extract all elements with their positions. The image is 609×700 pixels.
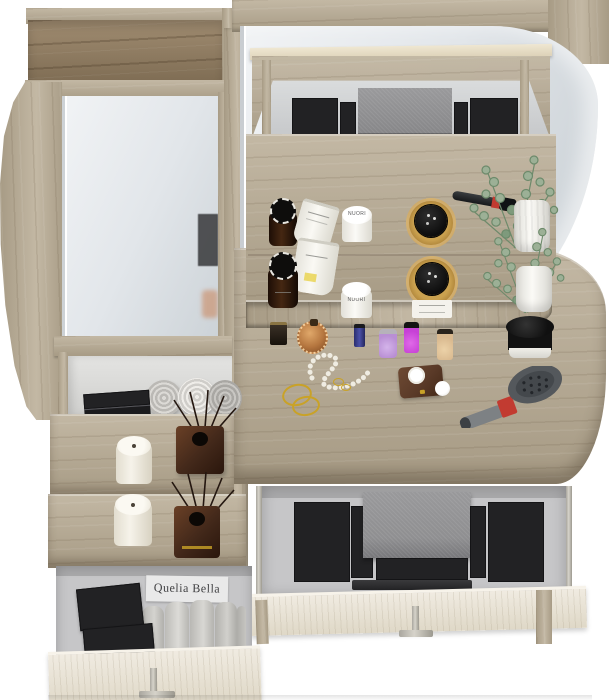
top-shelf-back-panel	[28, 20, 224, 84]
candle-wick	[132, 444, 136, 448]
lid-dots	[427, 214, 430, 217]
amber-dropper-bottle	[267, 252, 299, 308]
jar-lid-label: NUORI	[342, 206, 372, 224]
ornate-bottle-cap	[310, 319, 318, 326]
nail-polish-magenta	[404, 322, 419, 353]
diffuser-gold-label	[182, 546, 212, 549]
label-lines	[419, 305, 445, 313]
gold-earring	[341, 384, 351, 391]
black-powder-box	[506, 316, 554, 358]
jar-top	[342, 282, 371, 298]
mini-perfume-bottle	[270, 322, 287, 345]
powder-box-lid	[506, 316, 554, 338]
left-mirror-curved-frame	[0, 82, 66, 420]
table-leg	[536, 590, 552, 644]
right-drawer-handle-stem	[412, 606, 419, 632]
pillar-candle	[116, 436, 152, 484]
mirror-reflection-palette	[198, 214, 218, 266]
niche-top-bar	[54, 336, 232, 356]
drawer-slide-rail	[566, 486, 572, 594]
makeup-kit-palette-left	[294, 502, 350, 582]
makeup-kit-palette-right	[488, 502, 544, 582]
reed-diffuser	[174, 506, 220, 558]
white-cream-jar	[435, 381, 450, 396]
makeup-kit-gray-case	[363, 492, 471, 558]
compartment-strip-left	[340, 102, 356, 138]
compartment-palette-left	[292, 98, 338, 138]
jar-front-label	[412, 300, 452, 318]
powder-box-base	[509, 348, 551, 358]
nuori-jar: NUORI	[341, 282, 372, 318]
bottle-cap	[269, 252, 297, 280]
lid-post-right	[520, 60, 529, 138]
mirror-reflection-blob	[202, 290, 218, 318]
tube-accent-mark	[304, 273, 317, 283]
left-drawer-handle-stem	[150, 668, 157, 692]
bottle-cap	[270, 198, 296, 224]
amber-candle-jar	[406, 256, 458, 318]
diffuser-opening	[192, 432, 208, 446]
amber-candle-jar	[406, 198, 456, 254]
white-cream-jar	[408, 367, 425, 384]
plant-vase	[516, 266, 552, 312]
bottle-label-hint	[275, 292, 291, 298]
nuori-jar: NUORI	[342, 206, 372, 242]
nail-polish-blue	[354, 324, 365, 347]
makeup-kit-strip-right	[470, 506, 486, 578]
compartment-palette-right	[470, 98, 518, 138]
lid-dots	[428, 272, 431, 275]
hairbrush	[452, 366, 570, 428]
floor-shadow	[48, 695, 592, 700]
box-clasp	[420, 390, 425, 394]
compartment-gray-case	[358, 88, 452, 138]
candle-wick	[131, 503, 135, 507]
nail-polish-beige	[437, 329, 453, 360]
jar-black-lid	[415, 205, 447, 237]
diffuser-opening	[189, 512, 205, 526]
table-leg	[255, 600, 269, 644]
makeup-kit-under-row	[376, 558, 468, 580]
brand-card: Quelia Bella	[146, 575, 228, 602]
reed-diffuser	[176, 426, 224, 474]
jar-side-label: NUORI	[341, 298, 372, 303]
pillar-candle	[114, 494, 152, 546]
jar-black-lid	[416, 263, 448, 295]
niche-left-wall	[58, 352, 68, 418]
lid-post-left	[262, 60, 271, 138]
right-drawer-handle-bar	[399, 630, 433, 637]
vanity-product-render: NUORI	[0, 0, 609, 700]
compartment-strip-right	[454, 102, 468, 138]
